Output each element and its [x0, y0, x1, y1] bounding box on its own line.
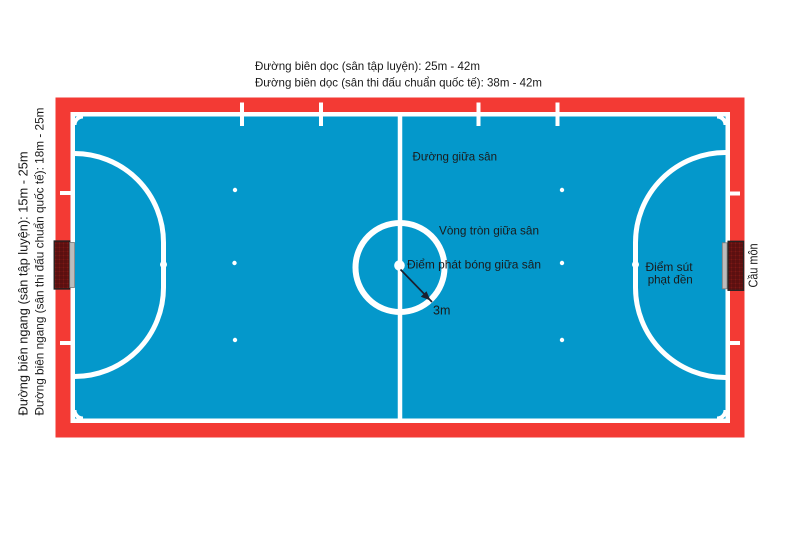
svg-text:phạt đền: phạt đền	[648, 273, 693, 287]
svg-text:Vòng tròn giữa sân: Vòng tròn giữa sân	[439, 224, 539, 238]
svg-text:Điểm phát bóng giữa sân: Điểm phát bóng giữa sân	[407, 258, 541, 272]
svg-text:Cầu môn: Cầu môn	[746, 244, 761, 288]
svg-text:3m: 3m	[433, 304, 450, 318]
svg-text:Đường biên ngang (sân tập luyệ: Đường biên ngang (sân tập luyện): 15m - …	[16, 152, 31, 416]
svg-text:Đường biên dọc (sân tập luyện): Đường biên dọc (sân tập luyện): 25m - 42…	[255, 59, 480, 73]
svg-text:Đường biên ngang (sân thi đấu: Đường biên ngang (sân thi đấu chuẩn quốc…	[33, 108, 47, 416]
svg-text:Đường giữa sân: Đường giữa sân	[413, 150, 498, 164]
svg-text:Đường biên dọc (sân thi đấu ch: Đường biên dọc (sân thi đấu chuẩn quốc t…	[255, 76, 542, 90]
